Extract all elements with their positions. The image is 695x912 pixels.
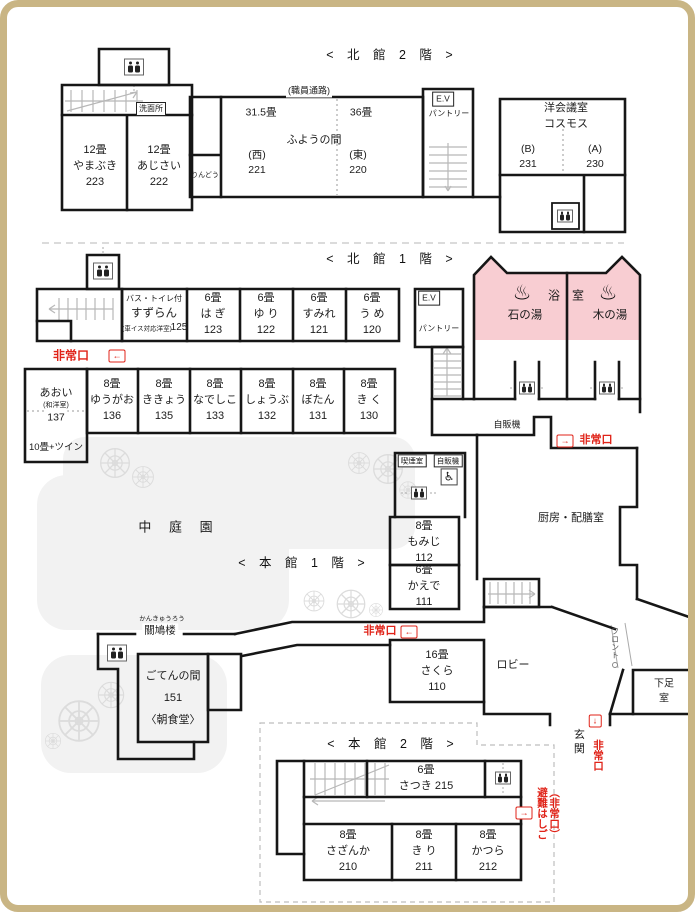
- room-230-a: (A) 230: [586, 142, 604, 172]
- room-123-hagi: 6畳 は ぎ 123: [200, 291, 225, 339]
- vending-machine-label-small: 自販機: [434, 454, 463, 467]
- restroom-icon-service: [411, 487, 427, 500]
- staff-corridor-label: (職員通路): [286, 84, 332, 97]
- smoking-room-label: 喫煙室: [398, 454, 427, 467]
- room-125-feature: バス・トイレ付: [126, 293, 182, 305]
- room-221-west: (西) 221: [248, 148, 266, 178]
- room-130-kiku: 8畳 き く 130: [356, 377, 381, 425]
- bath-label-yoku: 浴: [548, 287, 560, 304]
- kitchen-label: 厨房・配膳室: [538, 511, 604, 527]
- bath-kinoyu: 木の湯: [593, 308, 628, 325]
- room-220-east: (東) 220: [349, 148, 367, 178]
- vending-machine-label-top: 自販機: [493, 418, 520, 431]
- main1-title: < 本 館 1 階 >: [238, 554, 369, 572]
- room-aoi-name: あおい: [40, 386, 73, 402]
- main2-title: < 本 館 2 階 >: [327, 735, 458, 753]
- room-125-note: (車イス対応洋室): [122, 324, 172, 333]
- emergency-exit-arrow-west-icon: ←: [109, 350, 126, 363]
- restroom-icon-n2-right: [557, 210, 573, 223]
- room-fuyo-name: ふようの間: [287, 133, 342, 149]
- room-aoi-extra: 10畳+ツイン: [29, 441, 83, 455]
- room-131-botan: 8畳 ぼたん 131: [302, 377, 335, 425]
- room-125-number: 125: [171, 321, 188, 336]
- room-112-momiji: 8畳 もみじ 112: [408, 519, 441, 567]
- entrance-label: 玄 関: [572, 728, 585, 753]
- restroom-icon-main2: [495, 772, 511, 785]
- room-aoi-number: 137: [45, 410, 67, 425]
- kankyuro-label: 關鳩楼: [142, 623, 178, 638]
- pantry-label-n2: パントリー: [429, 108, 469, 120]
- room-121-sumire: 6畳 すみれ 121: [303, 291, 336, 339]
- room-133-nadeshiko: 8畳 なでしこ 133: [193, 377, 237, 425]
- escape-ladder-label: （非常口） 避難はしご: [536, 787, 560, 840]
- room-231-b: (B) 231: [519, 142, 537, 172]
- bath-label-shitsu: 室: [572, 287, 584, 304]
- room-135-kikyo: 8畳 ききょう 135: [142, 377, 186, 425]
- room-110-sakura: 16畳 さくら 110: [421, 648, 454, 696]
- onsen-icon-right: ♨: [599, 283, 618, 304]
- room-210-sazanka: 8畳 さざんか 210: [326, 828, 370, 876]
- lobby-label: ロビー: [497, 658, 530, 674]
- room-111-kaede: 6畳 かえで 111: [408, 563, 441, 611]
- restroom-icon-goten: [107, 645, 127, 662]
- elevator-label-n1: E.V: [418, 291, 440, 306]
- room-223-yamabuki: 12畳 やまぶき 223: [73, 143, 117, 191]
- wheelchair-icon: ♿: [441, 468, 458, 485]
- fuyo-west-size: 31.5畳: [246, 105, 277, 120]
- courtyard-label: 中 庭 園: [138, 519, 219, 538]
- restroom-icon-n1-top: [93, 263, 113, 280]
- room-222-ajisai: 12畳 あじさい 222: [137, 143, 181, 191]
- emergency-exit-label-corridor: 非常口: [364, 624, 397, 640]
- washroom-label: 洗面所: [136, 102, 166, 116]
- kankyuro-furigana: かんきゅうろう: [139, 614, 185, 623]
- shoe-room-label: 下足室: [652, 678, 676, 707]
- front-desk-note-mark: [613, 663, 618, 668]
- room-211-kiri: 8畳 き り 211: [411, 828, 436, 876]
- bath-ishinoyu: 石の湯: [508, 308, 543, 325]
- emergency-exit-label-entrance: 非常口: [592, 739, 604, 771]
- elevator-label-n2: E.V: [432, 92, 454, 107]
- emergency-exit-arrow-kitchen-icon: →: [557, 435, 574, 448]
- emergency-exit-label-west: 非常口: [53, 347, 89, 364]
- emergency-exit-arrow-entrance-icon: ↓: [589, 715, 602, 728]
- room-132-shobu: 8畳 しょうぶ 132: [245, 377, 289, 425]
- restroom-icon-bath-left: [519, 382, 535, 395]
- pantry-label-n1: パントリー: [419, 323, 459, 335]
- front-desk-label: フロント: [610, 627, 619, 659]
- conference-room-cosmos: 洋会議室 コスモス: [544, 101, 588, 133]
- room-151-goten: ごてんの間 151 〈朝食堂〉: [145, 665, 200, 731]
- room-120-ume: 6畳 う め 120: [359, 291, 384, 339]
- floorplan-page: < 北 館 2 階 > < 北 館 1 階 > < 本 館 1 階 > < 本 …: [0, 0, 695, 912]
- north2-title: < 北 館 2 階 >: [326, 46, 457, 64]
- room-rindou: りんどう: [191, 171, 219, 181]
- escape-ladder-arrow-icon: →: [516, 807, 533, 820]
- room-212-katsura: 8畳 かつら 212: [472, 828, 505, 876]
- room-215-satsuki: 6畳 さつき 215: [399, 763, 453, 795]
- onsen-icon-left: ♨: [513, 283, 532, 304]
- emergency-exit-label-kitchen: 非常口: [580, 433, 613, 449]
- emergency-exit-arrow-corridor-icon: ←: [401, 626, 418, 639]
- restroom-icon-n2-top: [124, 59, 144, 76]
- restroom-icon-bath-right: [599, 382, 615, 395]
- room-122-yuri: 6畳 ゆ り 122: [253, 291, 278, 339]
- room-136-yugao: 8畳 ゆうがお 136: [90, 377, 134, 425]
- north1-title: < 北 館 1 階 >: [326, 250, 457, 268]
- fuyo-east-size: 36畳: [350, 105, 372, 120]
